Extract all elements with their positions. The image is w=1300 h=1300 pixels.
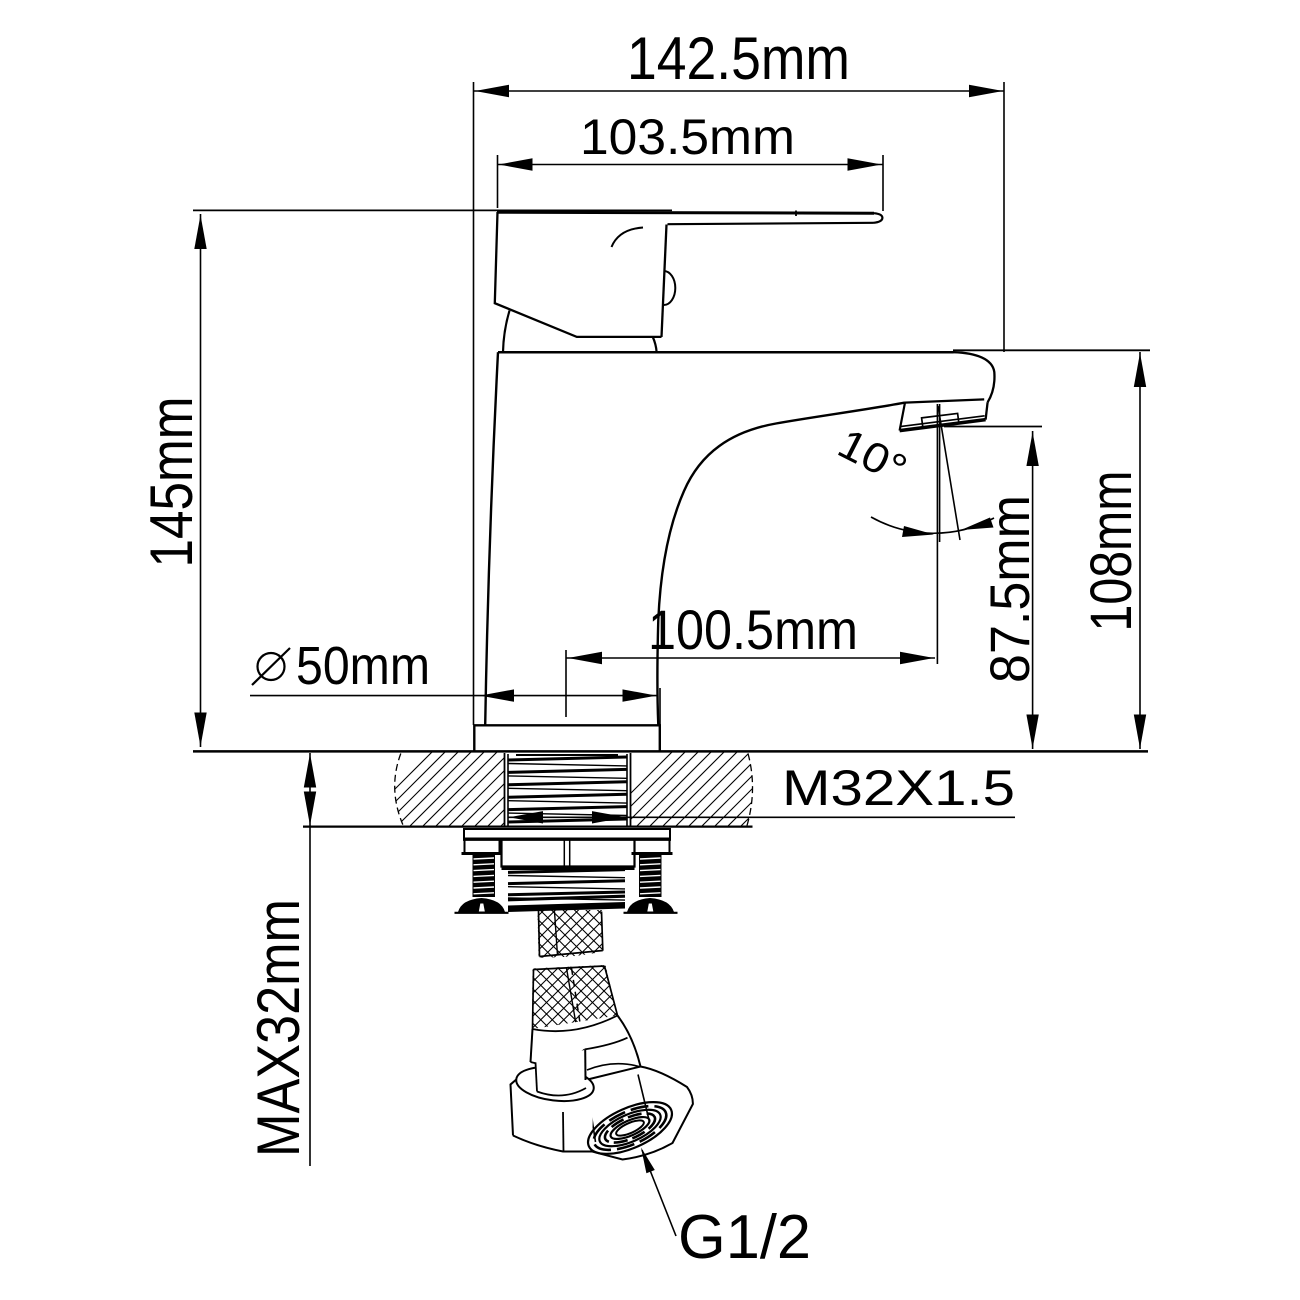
svg-text:108mm: 108mm [1079, 471, 1144, 632]
svg-text:G1/2: G1/2 [678, 1203, 811, 1272]
svg-text:142.5mm: 142.5mm [627, 25, 850, 92]
svg-text:50mm: 50mm [296, 636, 430, 696]
svg-text:MAX32mm: MAX32mm [245, 899, 312, 1157]
svg-text:103.5mm: 103.5mm [580, 109, 795, 165]
svg-text:100.5mm: 100.5mm [648, 598, 858, 661]
svg-text:145mm: 145mm [138, 397, 205, 568]
svg-text:M32X1.5: M32X1.5 [782, 760, 1015, 816]
